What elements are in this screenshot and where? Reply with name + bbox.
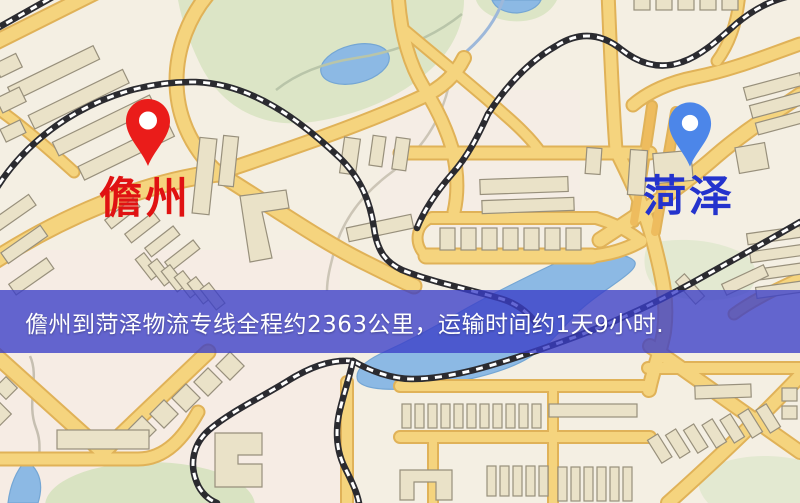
destination-pin-icon[interactable] (667, 101, 713, 173)
map[interactable]: 儋州到菏泽物流专线全程约2363公里，运输时间约1天9小时. 儋州 菏泽 (0, 0, 800, 503)
route-banner-text: 儋州到菏泽物流专线全程约2363公里，运输时间约1天9小时. (25, 305, 664, 339)
route-banner: 儋州到菏泽物流专线全程约2363公里，运输时间约1天9小时. (0, 290, 800, 353)
origin-pin-icon[interactable] (124, 98, 172, 172)
map-canvas (0, 0, 800, 503)
destination-label: 菏泽 (643, 176, 735, 219)
origin-label: 儋州 (99, 178, 191, 221)
